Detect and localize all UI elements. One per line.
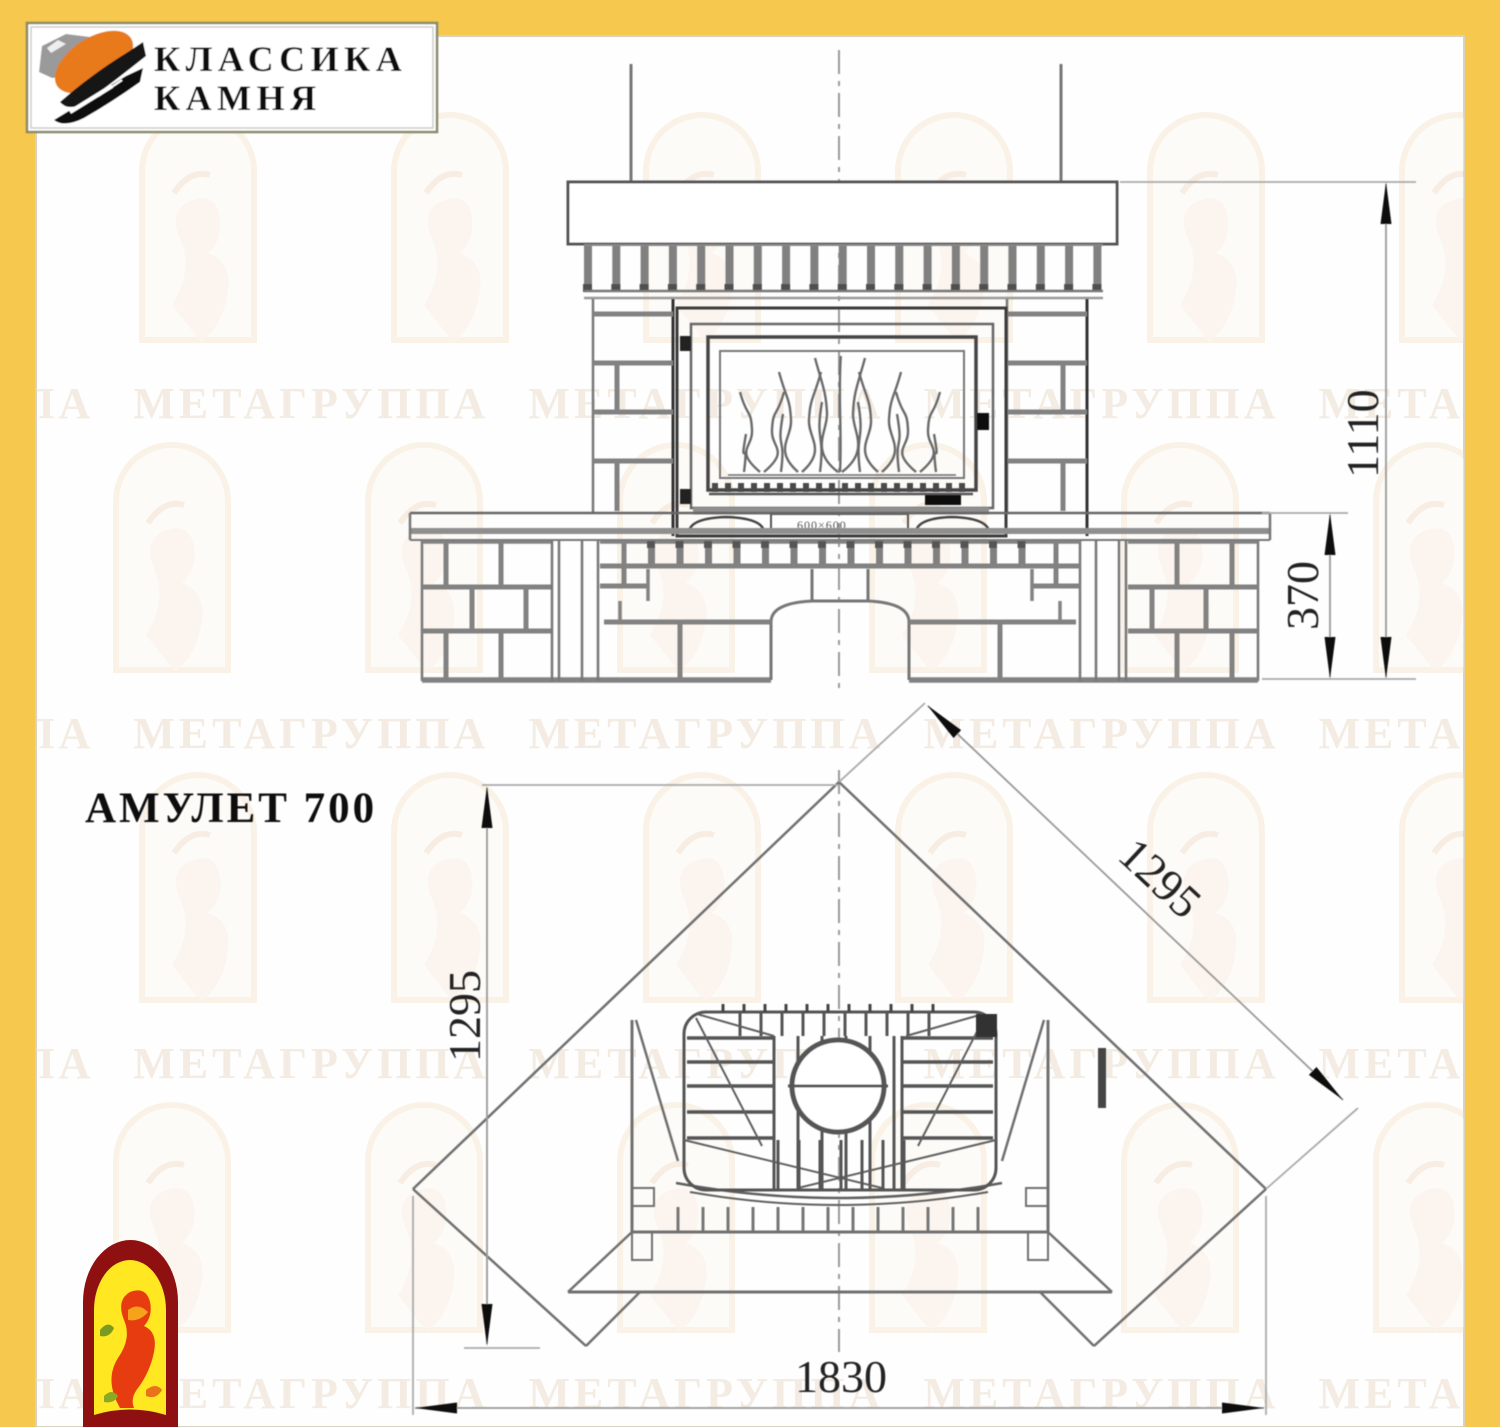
svg-text:1295: 1295	[439, 970, 490, 1062]
svg-text:АМУЛЕТ 700: АМУЛЕТ 700	[85, 785, 377, 832]
svg-text:КАМНЯ: КАМНЯ	[154, 78, 322, 118]
svg-text:370: 370	[1277, 561, 1328, 630]
svg-text:ППА МЕТАГРУППА МЕТАГРУППА МЕТА: ППА МЕТАГРУППА МЕТАГРУППА МЕТАГРУППА МЕТ…	[0, 709, 1500, 758]
svg-text:КЛАССИКА: КЛАССИКА	[154, 39, 407, 79]
svg-text:1110: 1110	[1337, 389, 1388, 478]
svg-text:1830: 1830	[795, 1351, 887, 1402]
svg-text:ППА МЕТАГРУППА МЕТАГРУППА МЕТА: ППА МЕТАГРУППА МЕТАГРУППА МЕТАГРУППА МЕТ…	[0, 1369, 1500, 1418]
